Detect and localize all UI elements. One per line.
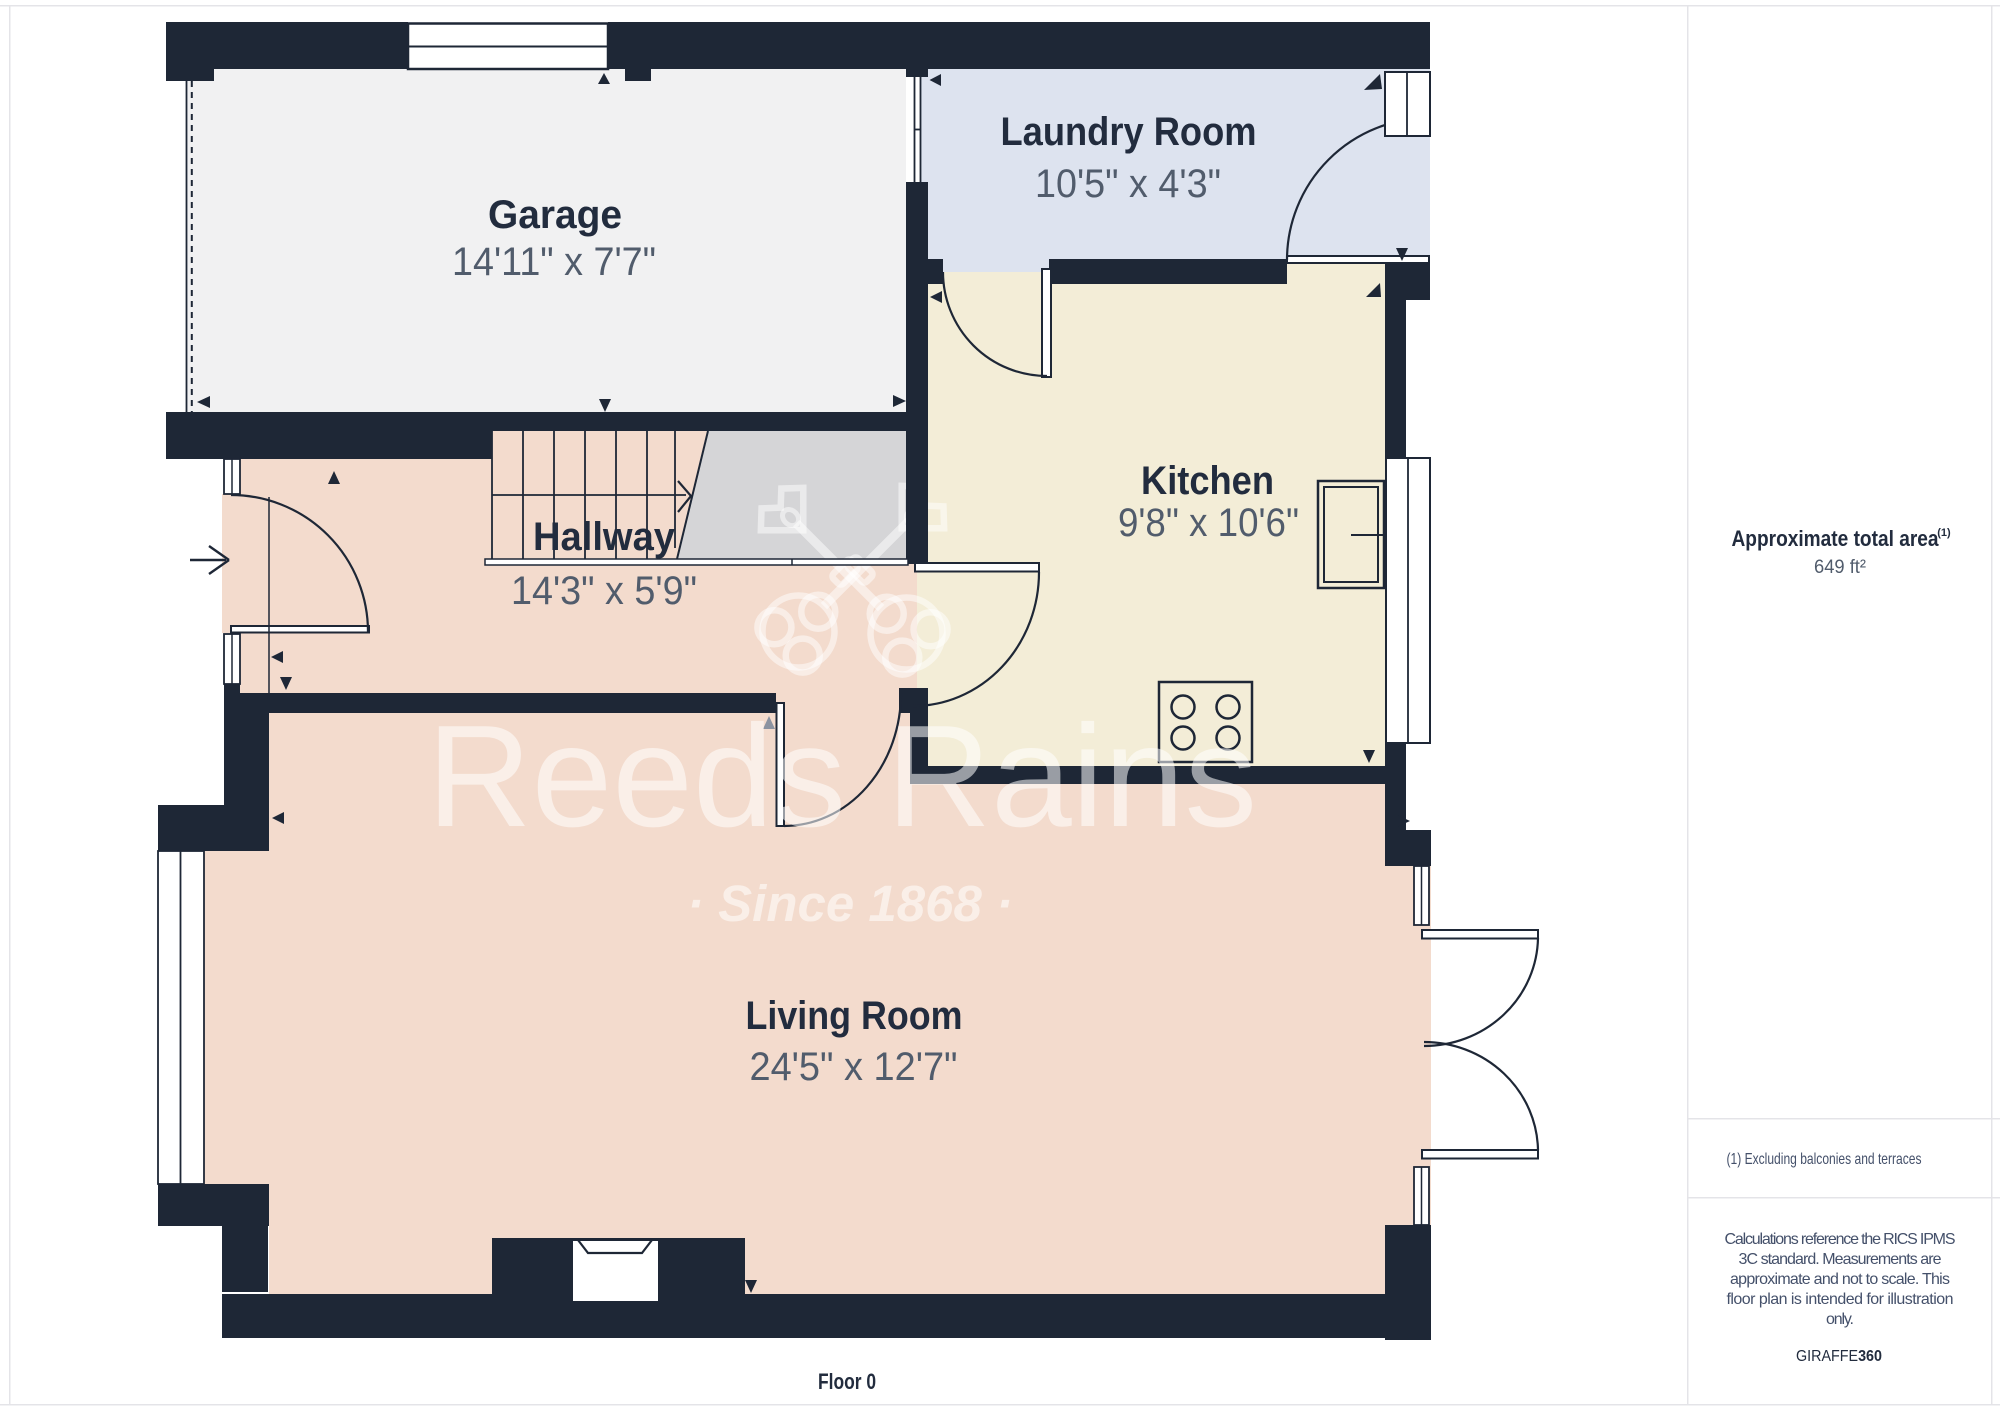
svg-text:14'11" x 7'7": 14'11" x 7'7": [452, 240, 656, 284]
svg-text:· Since 1868 ·: · Since 1868 ·: [687, 875, 1013, 932]
svg-text:Reeds Rains: Reeds Rains: [427, 695, 1257, 857]
svg-text:GIRAFFE360: GIRAFFE360: [1796, 1348, 1882, 1365]
svg-text:Floor 0: Floor 0: [818, 1369, 876, 1394]
svg-text:Approximate total area: Approximate total area: [1732, 526, 1940, 551]
svg-text:approximate and not to scale.: approximate and not to scale. This: [1730, 1271, 1950, 1288]
svg-text:(1): (1): [1937, 527, 1951, 539]
svg-text:floor plan is intended for ill: floor plan is intended for illustration: [1727, 1291, 1954, 1308]
svg-text:(1) Excluding balconies and te: (1) Excluding balconies and terraces: [1727, 1151, 1922, 1168]
svg-text:649 ft²: 649 ft²: [1814, 557, 1866, 578]
svg-text:9'8" x 10'6": 9'8" x 10'6": [1118, 501, 1299, 545]
svg-text:3C standard. Measurements are: 3C standard. Measurements are: [1739, 1251, 1942, 1268]
svg-text:only.: only.: [1826, 1311, 1854, 1328]
svg-text:14'3" x 5'9": 14'3" x 5'9": [511, 569, 697, 613]
svg-text:Kitchen: Kitchen: [1141, 459, 1274, 503]
svg-text:24'5" x 12'7": 24'5" x 12'7": [750, 1045, 958, 1089]
svg-text:Garage: Garage: [488, 193, 622, 237]
svg-text:10'5" x 4'3": 10'5" x 4'3": [1035, 162, 1221, 206]
svg-text:Calculations reference the RIC: Calculations reference the RICS IPMS: [1725, 1231, 1956, 1248]
svg-text:Living Room: Living Room: [746, 994, 963, 1038]
svg-text:Laundry Room: Laundry Room: [1001, 110, 1257, 154]
svg-text:Hallway: Hallway: [533, 515, 676, 559]
